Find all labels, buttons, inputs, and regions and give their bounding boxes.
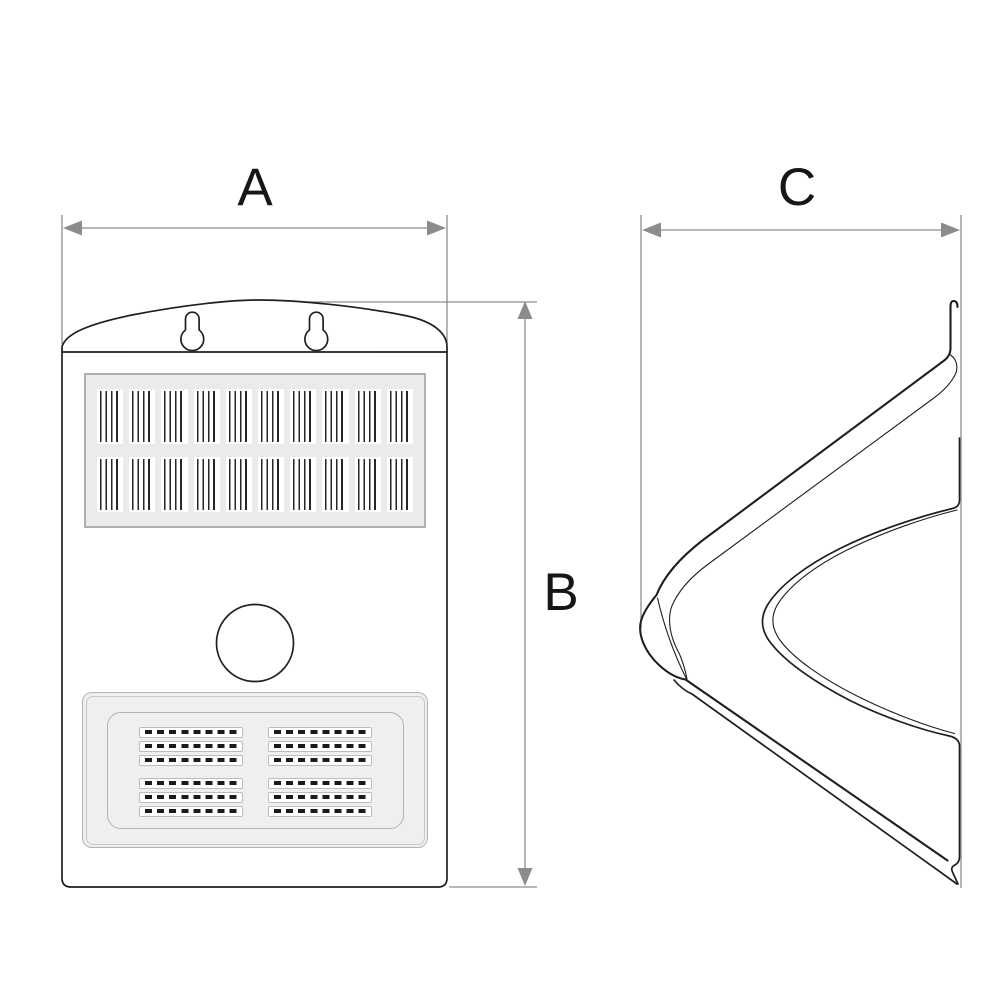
- led-strip: [268, 727, 372, 738]
- side-cavity-inner-line: [773, 510, 957, 734]
- led-strip: [268, 792, 372, 803]
- solar-cell-row: [97, 389, 413, 444]
- motion-sensor-circle: [217, 605, 294, 682]
- dim-b-arrowhead-bottom: [518, 868, 533, 886]
- led-column-left: [139, 727, 243, 817]
- solar-cell: [97, 457, 123, 512]
- led-strip: [139, 778, 243, 789]
- grille-inner-frame: [107, 712, 404, 829]
- led-strip: [268, 806, 372, 817]
- solar-cell: [97, 389, 123, 444]
- solar-cell: [387, 389, 413, 444]
- solar-cell: [290, 457, 316, 512]
- solar-cell: [129, 389, 155, 444]
- led-strip: [139, 755, 243, 766]
- led-strip: [139, 727, 243, 738]
- led-strip: [139, 741, 243, 752]
- dim-c-arrowhead-left: [642, 223, 661, 238]
- led-strip: [268, 741, 372, 752]
- solar-cell: [194, 389, 220, 444]
- dim-b-arrowhead-top: [518, 301, 533, 319]
- dimension-label-a: A: [225, 161, 285, 214]
- led-grille: [82, 692, 428, 848]
- side-back-edge-and-cavity: [762, 438, 959, 884]
- side-bottom-inner-edge: [674, 680, 957, 884]
- dim-c-arrowhead-right: [941, 223, 960, 238]
- solar-cell: [355, 389, 381, 444]
- solar-cell: [161, 389, 187, 444]
- dim-a-arrowhead-right: [427, 221, 446, 236]
- solar-cell: [129, 457, 155, 512]
- solar-cell: [194, 457, 220, 512]
- solar-cell: [322, 457, 348, 512]
- solar-cell: [355, 457, 381, 512]
- solar-cell: [322, 389, 348, 444]
- solar-cell: [258, 389, 284, 444]
- side-inner-top-surface: [670, 355, 957, 679]
- solar-cell: [290, 389, 316, 444]
- led-column-right: [268, 727, 372, 817]
- led-strip: [268, 778, 372, 789]
- dimension-label-b: B: [531, 566, 591, 619]
- dimension-label-c: C: [767, 161, 827, 214]
- led-strip: [139, 806, 243, 817]
- solar-panel: [84, 373, 426, 528]
- solar-cell: [226, 457, 252, 512]
- led-strip: [268, 755, 372, 766]
- solar-cell: [161, 457, 187, 512]
- led-strip: [139, 792, 243, 803]
- dim-a-arrowhead-left: [63, 221, 82, 236]
- solar-cell: [258, 457, 284, 512]
- solar-cell-row: [97, 457, 413, 512]
- solar-cell: [387, 457, 413, 512]
- solar-cell: [226, 389, 252, 444]
- technical-drawing-canvas: A B C: [0, 0, 1000, 1000]
